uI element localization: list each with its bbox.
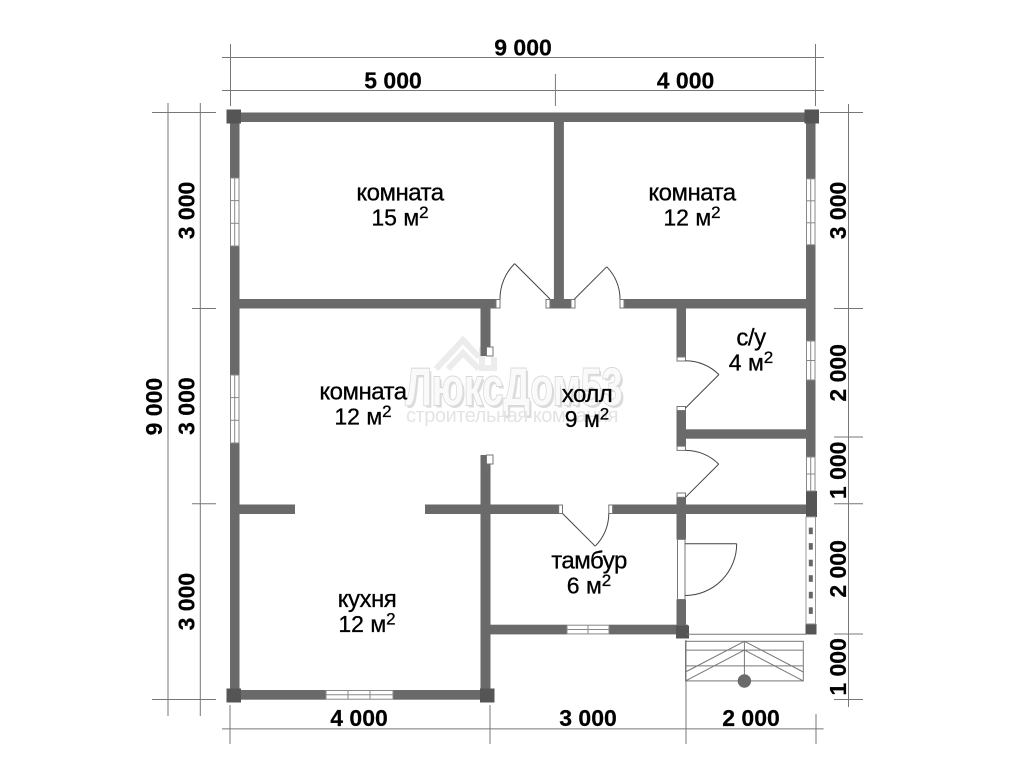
svg-text:3 000: 3 000 — [825, 182, 851, 240]
svg-text:2 000: 2 000 — [825, 344, 851, 402]
svg-text:2 000: 2 000 — [722, 705, 780, 731]
svg-text:9 000: 9 000 — [141, 378, 167, 436]
svg-text:4 000: 4 000 — [657, 68, 715, 94]
svg-text:3 000: 3 000 — [174, 377, 200, 435]
svg-text:с/у: с/у — [736, 325, 766, 352]
svg-text:2 000: 2 000 — [825, 540, 851, 598]
svg-text:3 000: 3 000 — [174, 182, 200, 240]
svg-text:9 000: 9 000 — [494, 34, 552, 60]
svg-text:комната: комната — [356, 180, 444, 207]
svg-text:3 000: 3 000 — [174, 573, 200, 631]
svg-text:комната: комната — [319, 378, 407, 405]
svg-text:5 000: 5 000 — [364, 68, 422, 94]
svg-text:4 000: 4 000 — [330, 705, 388, 731]
svg-text:1 000: 1 000 — [825, 638, 851, 696]
svg-text:1 000: 1 000 — [825, 442, 851, 500]
svg-text:3 000: 3 000 — [559, 705, 617, 731]
svg-text:комната: комната — [648, 180, 736, 207]
svg-text:тамбур: тамбур — [551, 548, 627, 575]
